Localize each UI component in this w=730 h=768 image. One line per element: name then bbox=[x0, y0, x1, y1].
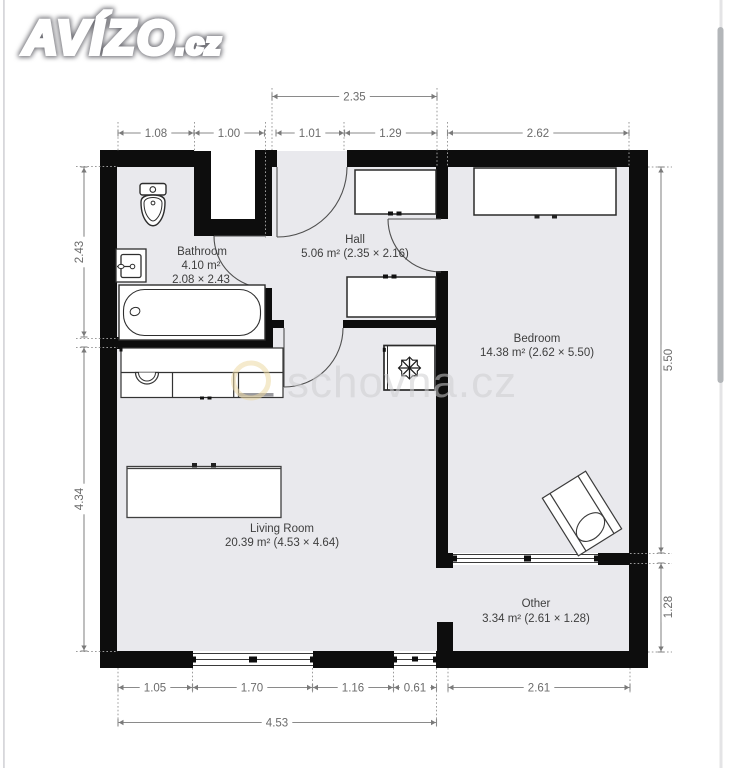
svg-text:1.70: 1.70 bbox=[241, 683, 263, 695]
svg-text:1.08: 1.08 bbox=[145, 128, 167, 140]
svg-text:4.34: 4.34 bbox=[74, 487, 86, 510]
svg-text:2.61: 2.61 bbox=[528, 683, 550, 695]
svg-text:schovna.cz: schovna.cz bbox=[287, 358, 517, 407]
svg-text:1.28: 1.28 bbox=[663, 596, 675, 618]
svg-text:1.05: 1.05 bbox=[144, 683, 166, 695]
svg-text:2.62: 2.62 bbox=[527, 128, 549, 140]
svg-text:5.06 m² (2.35 × 2.16): 5.06 m² (2.35 × 2.16) bbox=[301, 248, 409, 260]
svg-text:2.43: 2.43 bbox=[74, 241, 86, 263]
svg-text:4.53: 4.53 bbox=[266, 718, 288, 730]
svg-text:20.39 m² (4.53 × 4.64): 20.39 m² (4.53 × 4.64) bbox=[225, 537, 339, 549]
svg-text:Other: Other bbox=[522, 598, 551, 610]
svg-text:Bedroom: Bedroom bbox=[514, 333, 561, 345]
svg-text:1.00: 1.00 bbox=[218, 128, 240, 140]
svg-text:1.29: 1.29 bbox=[379, 128, 401, 140]
svg-text:3.34 m² (2.61 × 1.28): 3.34 m² (2.61 × 1.28) bbox=[482, 613, 590, 625]
svg-text:4.10 m²: 4.10 m² bbox=[182, 260, 221, 272]
svg-text:2.35: 2.35 bbox=[343, 92, 365, 104]
svg-text:1.01: 1.01 bbox=[299, 128, 321, 140]
svg-text:2.08 × 2.43: 2.08 × 2.43 bbox=[172, 274, 230, 286]
svg-text:0.61: 0.61 bbox=[404, 683, 426, 695]
svg-text:5.50: 5.50 bbox=[663, 349, 675, 371]
svg-text:1.16: 1.16 bbox=[342, 683, 364, 695]
svg-text:Living Room: Living Room bbox=[250, 523, 314, 535]
svg-text:Hall: Hall bbox=[345, 234, 365, 246]
svg-text:Bathroom: Bathroom bbox=[177, 246, 227, 258]
